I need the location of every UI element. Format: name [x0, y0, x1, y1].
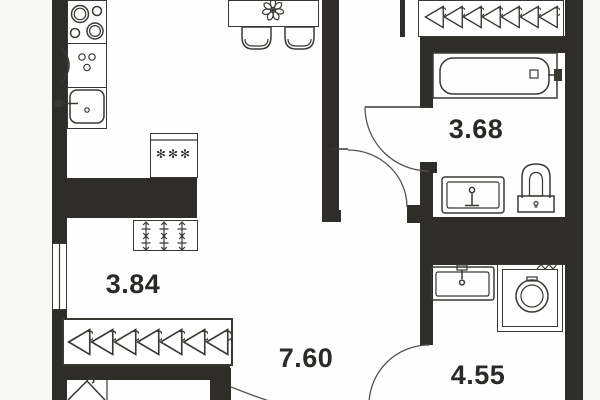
- chair: [242, 27, 271, 49]
- coat-hanger-icon: [68, 378, 105, 400]
- toilet: [518, 164, 554, 212]
- bathtub: [433, 53, 562, 98]
- hanger-icons-bottom: [69, 330, 232, 355]
- chair: [285, 27, 314, 49]
- oven-knobs-icon: [79, 54, 95, 71]
- kitchen-sink-basin: [55, 90, 104, 123]
- washing-machine-drum-icon: [516, 265, 557, 313]
- door-entrance: [231, 387, 269, 400]
- washbasin: [442, 177, 504, 213]
- door-bathroom: [365, 107, 430, 171]
- hanger-icons-top: [425, 6, 560, 27]
- door-living: [330, 149, 407, 207]
- hanger-icon: [539, 6, 560, 27]
- stove-burners-icon: [71, 6, 104, 40]
- washbasin-2: [431, 265, 494, 300]
- flower-icon: [262, 0, 285, 21]
- plan-symbols-layer: [0, 0, 600, 400]
- door-wc: [369, 345, 429, 400]
- hanger-icon: [207, 330, 232, 355]
- floor-plan: ✻✻✻ 3.84 3.68 7.60 4.55: [0, 0, 600, 400]
- half-oval-icon: [61, 47, 69, 83]
- freezer-cross-icons: [142, 222, 187, 250]
